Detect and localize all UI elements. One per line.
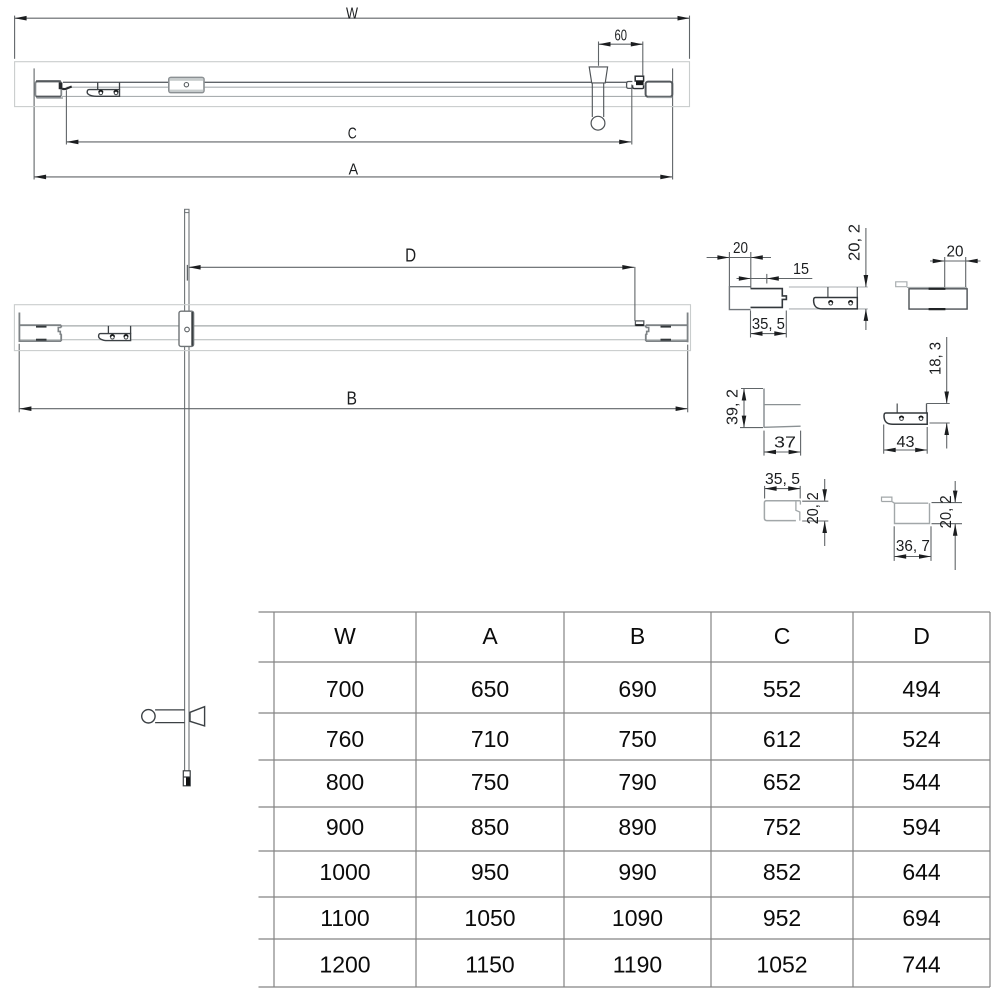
svg-text:552: 552 bbox=[763, 676, 801, 702]
svg-text:43: 43 bbox=[897, 434, 915, 451]
svg-text:C: C bbox=[348, 125, 357, 142]
svg-text:1000: 1000 bbox=[319, 859, 370, 885]
svg-text:752: 752 bbox=[763, 814, 801, 840]
svg-text:650: 650 bbox=[471, 676, 509, 702]
svg-text:1090: 1090 bbox=[612, 905, 663, 931]
svg-text:W: W bbox=[334, 623, 356, 649]
svg-text:A: A bbox=[482, 623, 498, 649]
svg-text:35, 5: 35, 5 bbox=[765, 471, 800, 488]
svg-text:1200: 1200 bbox=[319, 952, 370, 978]
svg-text:35, 5: 35, 5 bbox=[752, 316, 785, 333]
svg-text:594: 594 bbox=[902, 814, 941, 840]
svg-text:1050: 1050 bbox=[464, 905, 515, 931]
svg-text:850: 850 bbox=[471, 814, 509, 840]
svg-text:652: 652 bbox=[763, 769, 801, 795]
svg-text:952: 952 bbox=[763, 905, 801, 931]
svg-text:694: 694 bbox=[902, 905, 941, 931]
svg-text:1150: 1150 bbox=[465, 952, 514, 978]
svg-text:494: 494 bbox=[902, 676, 941, 702]
svg-text:644: 644 bbox=[902, 859, 941, 885]
svg-text:D: D bbox=[405, 246, 416, 266]
svg-text:A: A bbox=[349, 161, 359, 178]
svg-text:1100: 1100 bbox=[320, 905, 369, 931]
svg-text:750: 750 bbox=[471, 769, 509, 795]
svg-text:760: 760 bbox=[326, 726, 364, 752]
svg-text:750: 750 bbox=[618, 726, 656, 752]
svg-text:524: 524 bbox=[902, 726, 941, 752]
svg-text:C: C bbox=[774, 623, 791, 649]
svg-text:1052: 1052 bbox=[756, 952, 807, 978]
svg-text:W: W bbox=[346, 6, 359, 23]
svg-text:20: 20 bbox=[947, 243, 964, 260]
svg-text:20: 20 bbox=[733, 240, 748, 257]
svg-text:710: 710 bbox=[471, 726, 509, 752]
svg-text:852: 852 bbox=[763, 859, 801, 885]
svg-text:D: D bbox=[913, 623, 930, 649]
svg-text:B: B bbox=[630, 623, 645, 649]
svg-text:20, 2: 20, 2 bbox=[938, 495, 955, 528]
svg-text:950: 950 bbox=[471, 859, 509, 885]
svg-text:1190: 1190 bbox=[613, 952, 662, 978]
svg-text:20, 2: 20, 2 bbox=[805, 492, 822, 524]
svg-text:15: 15 bbox=[793, 261, 809, 278]
svg-text:612: 612 bbox=[763, 726, 801, 752]
svg-text:900: 900 bbox=[326, 814, 364, 840]
svg-text:39, 2: 39, 2 bbox=[725, 389, 742, 425]
svg-text:990: 990 bbox=[618, 859, 656, 885]
svg-text:20, 2: 20, 2 bbox=[847, 224, 864, 261]
svg-text:37: 37 bbox=[774, 434, 796, 451]
svg-text:800: 800 bbox=[326, 769, 364, 795]
svg-text:790: 790 bbox=[618, 769, 656, 795]
svg-text:690: 690 bbox=[618, 676, 656, 702]
svg-text:36, 7: 36, 7 bbox=[896, 538, 930, 555]
svg-text:700: 700 bbox=[326, 676, 364, 702]
svg-text:744: 744 bbox=[902, 952, 941, 978]
svg-text:B: B bbox=[347, 389, 358, 409]
svg-text:890: 890 bbox=[618, 814, 656, 840]
svg-text:544: 544 bbox=[902, 769, 941, 795]
svg-text:18, 3: 18, 3 bbox=[927, 342, 944, 375]
svg-text:60: 60 bbox=[615, 28, 628, 45]
